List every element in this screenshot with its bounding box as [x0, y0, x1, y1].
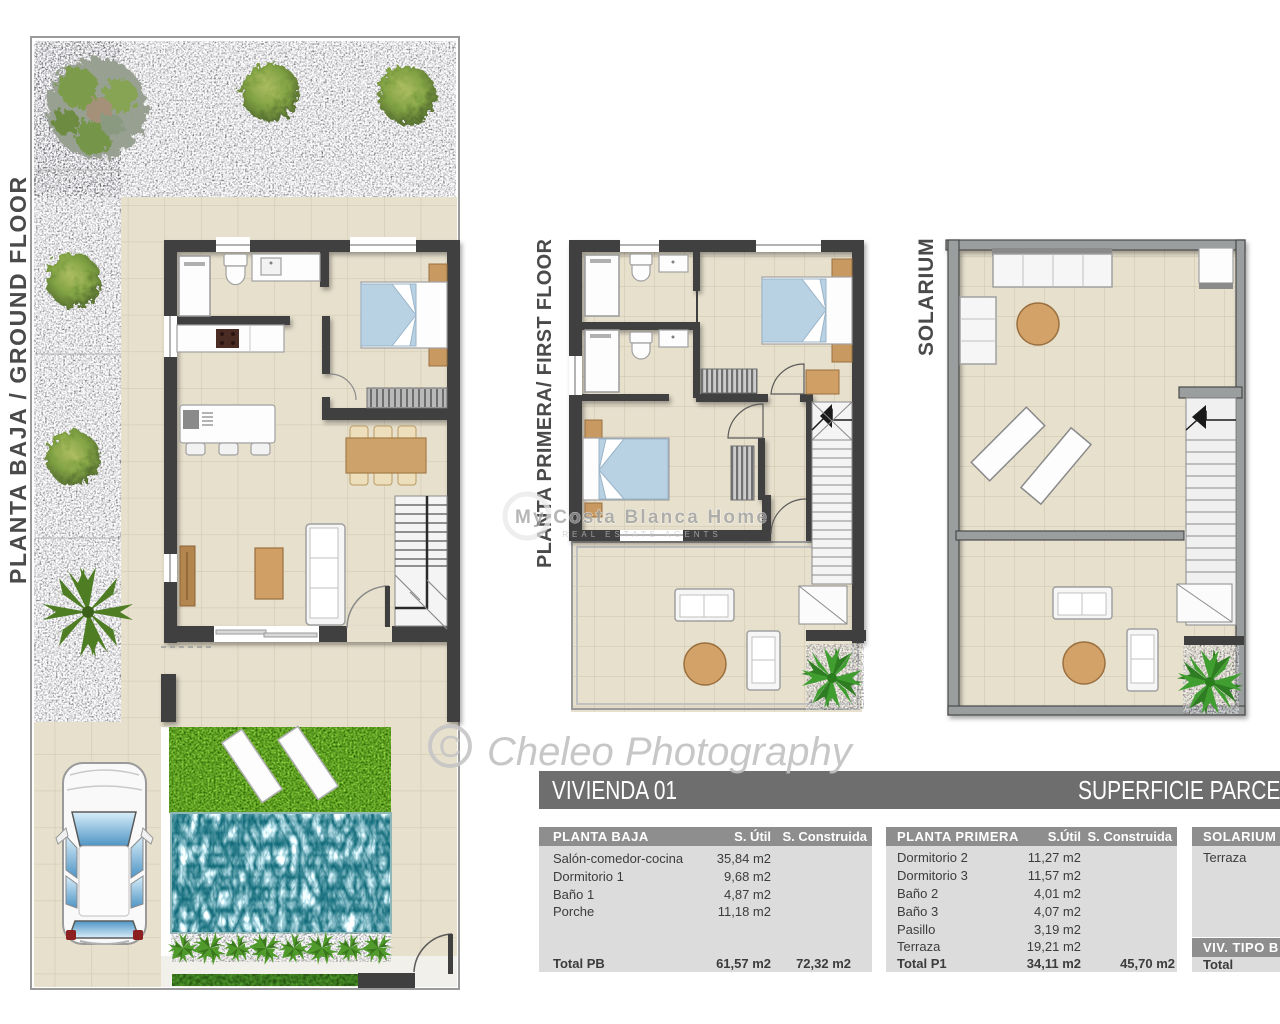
- svg-text:C: C: [439, 729, 461, 764]
- svg-text:PLANTA PRIMERA: PLANTA PRIMERA: [897, 829, 1019, 844]
- svg-text:My Costa Blanca Home: My Costa Blanca Home: [515, 507, 769, 528]
- svg-text:45,70 m2: 45,70 m2: [1120, 956, 1175, 971]
- svg-text:Total: Total: [1203, 957, 1233, 972]
- svg-text:Pasillo: Pasillo: [897, 922, 935, 937]
- svg-text:Dormitorio 2: Dormitorio 2: [897, 850, 968, 865]
- svg-text:Terraza: Terraza: [897, 939, 941, 954]
- svg-text:PLANTA BAJA / GROUND FLOOR: PLANTA BAJA / GROUND FLOOR: [5, 175, 31, 584]
- svg-text:4,87 m2: 4,87 m2: [724, 887, 771, 902]
- svg-text:S.Útil: S.Útil: [1048, 829, 1081, 844]
- svg-text:Total P1: Total P1: [897, 956, 947, 971]
- svg-text:SOLARIUM: SOLARIUM: [1203, 829, 1276, 844]
- svg-text:4,07 m2: 4,07 m2: [1034, 904, 1081, 919]
- svg-text:Dormitorio 1: Dormitorio 1: [553, 869, 624, 884]
- svg-text:REAL ESTATE AGENTS: REAL ESTATE AGENTS: [562, 530, 721, 539]
- svg-text:S. Construida: S. Construida: [1087, 829, 1172, 844]
- svg-text:Dormitorio 3: Dormitorio 3: [897, 868, 968, 883]
- svg-text:61,57 m2: 61,57 m2: [716, 956, 771, 971]
- svg-text:VIVIENDA 01: VIVIENDA 01: [552, 775, 677, 805]
- svg-text:Cheleo Photography: Cheleo Photography: [487, 730, 855, 774]
- svg-text:Total PB: Total PB: [553, 956, 605, 971]
- svg-text:Salón-comedor-cocina: Salón-comedor-cocina: [553, 851, 684, 866]
- svg-text:9,68 m2: 9,68 m2: [724, 869, 771, 884]
- svg-text:SOLARIUM: SOLARIUM: [915, 238, 938, 356]
- svg-text:35,84 m2: 35,84 m2: [717, 851, 771, 866]
- svg-text:Porche: Porche: [553, 904, 594, 919]
- svg-text:3,19 m2: 3,19 m2: [1034, 922, 1081, 937]
- svg-text:VIV. TIPO B: VIV. TIPO B: [1203, 940, 1279, 955]
- svg-text:Baño 1: Baño 1: [553, 887, 594, 902]
- svg-text:Baño 2: Baño 2: [897, 886, 938, 901]
- svg-text:19,21 m2: 19,21 m2: [1027, 939, 1081, 954]
- svg-text:SUPERFICIE PARCELA: SUPERFICIE PARCELA: [1078, 775, 1280, 805]
- svg-text:11,27 m2: 11,27 m2: [1028, 850, 1081, 865]
- svg-text:Baño 3: Baño 3: [897, 904, 938, 919]
- svg-text:72,32 m2: 72,32 m2: [796, 956, 851, 971]
- svg-text:34,11 m2: 34,11 m2: [1027, 956, 1081, 971]
- svg-text:11,18 m2: 11,18 m2: [718, 904, 771, 919]
- svg-text:S. Útil: S. Útil: [734, 829, 771, 844]
- svg-text:S. Construida: S. Construida: [782, 829, 867, 844]
- svg-text:4,01 m2: 4,01 m2: [1034, 886, 1081, 901]
- svg-text:Terraza: Terraza: [1203, 850, 1247, 865]
- svg-text:PLANTA BAJA: PLANTA BAJA: [553, 829, 649, 844]
- svg-text:11,57 m2: 11,57 m2: [1028, 868, 1081, 883]
